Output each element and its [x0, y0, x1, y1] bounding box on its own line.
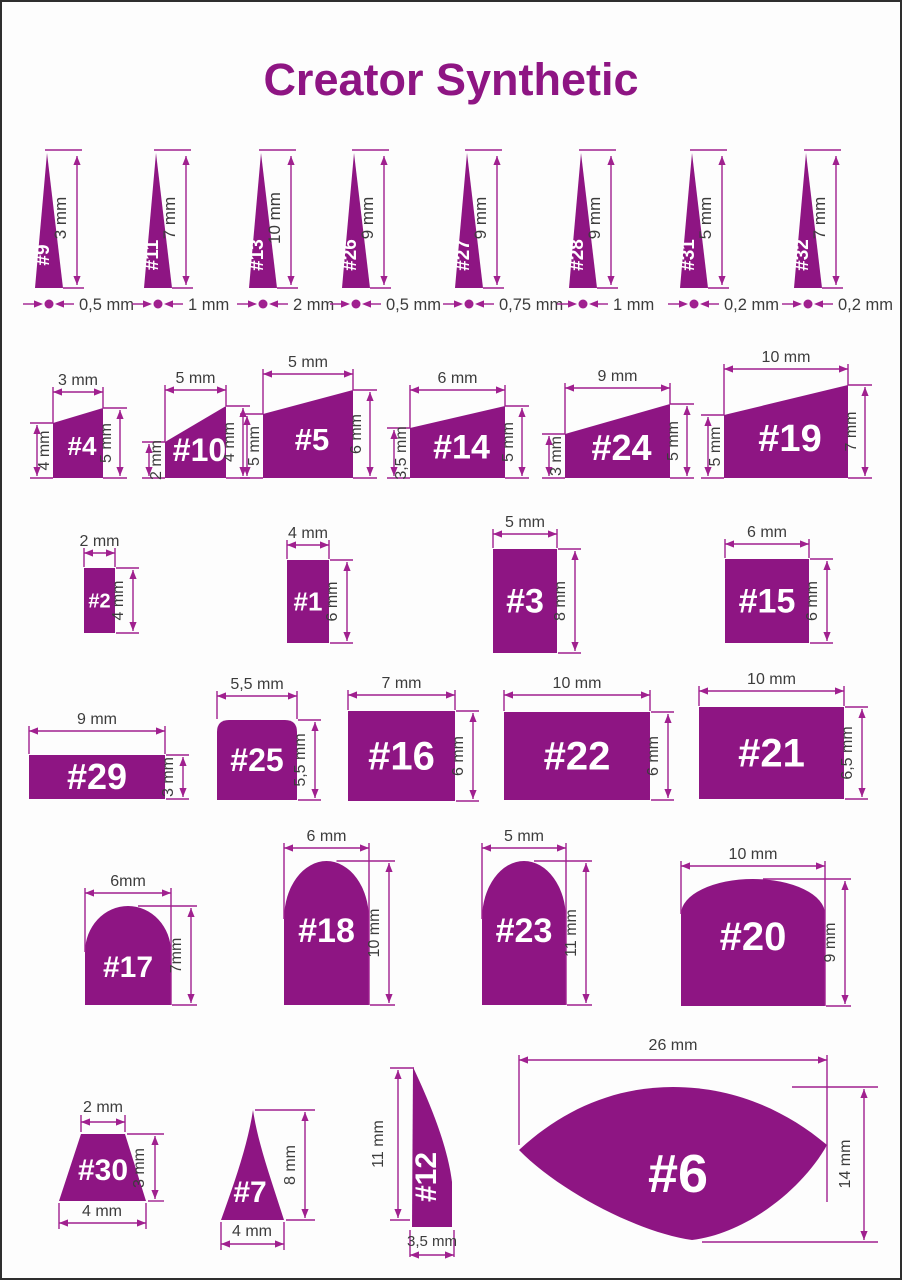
arrowhead-icon [568, 300, 577, 307]
brush-30-label: #30 [78, 1154, 128, 1187]
arrowhead-icon [664, 789, 671, 798]
brush-5-top-dim-label: 5 mm [288, 354, 328, 371]
arrowhead-icon [860, 1089, 867, 1098]
brush-16-group: 7 mm6 mm#16 [348, 675, 479, 801]
arrowhead-icon [394, 1209, 401, 1218]
brush-21-top-dim-label: 10 mm [747, 671, 796, 688]
brush-27-height-dim-label: 9 mm [471, 197, 490, 240]
brush-21-right-dim-label: 6,5 mm [839, 726, 856, 779]
brush-17-label: #17 [103, 951, 153, 984]
arrowhead-icon [182, 156, 189, 165]
arrowhead-icon [518, 408, 525, 417]
arrowhead-icon [348, 691, 357, 698]
arrowhead-icon [59, 1219, 68, 1226]
brush-7-label: #7 [233, 1176, 266, 1209]
arrowhead-icon [410, 1251, 419, 1258]
brush-25-right-dim-label: 5,5 mm [292, 733, 309, 786]
brush-17-group: 6mm7mm#17 [85, 873, 197, 1005]
arrowhead-icon [362, 300, 371, 307]
arrowhead-icon [85, 889, 94, 896]
brush-18-top-dim-label: 6 mm [307, 828, 347, 845]
width-dot-icon [579, 300, 588, 309]
arrowhead-icon [861, 387, 868, 396]
brush-16-label: #16 [368, 735, 435, 779]
brush-23-group: 5 mm11 mm#23 [482, 828, 592, 1005]
arrowhead-icon [571, 551, 578, 560]
brush-19-group: 10 mm5 mm7 mm#19 [701, 349, 872, 478]
arrowhead-icon [55, 300, 64, 307]
arrowhead-icon [589, 300, 598, 307]
brush-25-label: #25 [230, 742, 283, 778]
brush-20-top-dim-label: 10 mm [729, 846, 778, 863]
brush-11-width-dim-label: 1 mm [188, 296, 229, 314]
brush-3-top-dim-label: 5 mm [505, 514, 545, 531]
arrowhead-icon [366, 392, 373, 401]
arrowhead-icon [151, 1190, 158, 1199]
brush-12-group: 11 mm3,5 mm#12 [370, 1067, 457, 1259]
brush-20-label: #20 [720, 915, 787, 959]
brush-29-group: 9 mm3 mm#29 [29, 711, 189, 799]
arrowhead-icon [221, 1240, 230, 1247]
brush-5-group: 5 mm5 mm6 mm#5 [240, 354, 377, 478]
arrowhead-icon [385, 994, 392, 1003]
arrowhead-icon [29, 727, 38, 734]
brush-12-bottom-dim-label: 3,5 mm [407, 1233, 457, 1250]
brush-7-bottom-dim-label: 4 mm [232, 1223, 272, 1240]
brush-7-group: 8 mm4 mm#7 [221, 1110, 315, 1250]
arrowhead-icon [284, 844, 293, 851]
brush-5-left-dim-label: 5 mm [246, 426, 263, 466]
arrowhead-icon [94, 388, 103, 395]
arrowhead-icon [410, 386, 419, 393]
arrowhead-icon [832, 276, 839, 285]
brush-28-group: 9 mm#281 mm [557, 150, 654, 314]
brush-31-group: 5 mm#310,2 mm [668, 150, 779, 314]
brush-15-group: 6 mm6 mm#15 [725, 524, 833, 643]
brush-15-right-dim-label: 6 mm [804, 581, 821, 621]
arrowhead-icon [165, 386, 174, 393]
brush-28-label: #28 [567, 239, 588, 271]
arrowhead-icon [839, 365, 848, 372]
arrowhead-icon [841, 995, 848, 1004]
arrowhead-icon [287, 276, 294, 285]
brush-22-right-dim-label: 6 mm [645, 736, 662, 776]
brush-31-label: #31 [678, 239, 699, 271]
brush-27-label: #27 [453, 239, 474, 271]
brush-32-group: 7 mm#320,2 mm [782, 150, 893, 314]
arrowhead-icon [301, 1112, 308, 1121]
brush-23-top-dim-label: 5 mm [504, 828, 544, 845]
brush-6-group: 26 mm14 mm#6 [519, 1037, 878, 1242]
brush-2-label: #2 [88, 590, 110, 612]
arrowhead-icon [823, 632, 830, 641]
brush-17-top-dim-label: 6mm [110, 873, 146, 890]
brush-10-left-dim-label: 2 mm [148, 440, 165, 480]
arrowhead-icon [301, 1209, 308, 1218]
brush-19-left-dim-label: 5 mm [707, 427, 724, 467]
brush-19-right-dim-label: 7 mm [843, 412, 860, 452]
arrowhead-icon [116, 410, 123, 419]
arrowhead-icon [311, 722, 318, 731]
brush-9-height-dim-label: 3 mm [51, 197, 70, 240]
brush-22-group: 10 mm6 mm#22 [504, 675, 674, 800]
brush-24-group: 9 mm3 mm5 mm#24 [542, 368, 694, 478]
brush-21-label: #21 [738, 732, 805, 776]
arrowhead-icon [607, 276, 614, 285]
arrowhead-icon [800, 540, 809, 547]
arrowhead-icon [366, 467, 373, 476]
brush-2-top-dim-label: 2 mm [80, 533, 120, 550]
arrowhead-icon [469, 713, 476, 722]
arrowhead-icon [469, 790, 476, 799]
arrowhead-icon [548, 530, 557, 537]
brush-6-right-dim-label: 14 mm [837, 1140, 854, 1189]
brush-1-right-dim-label: 6 mm [324, 582, 341, 622]
brush-11-height-dim-label: 7 mm [160, 197, 179, 240]
arrowhead-icon [700, 300, 709, 307]
brush-28-width-dim-label: 1 mm [613, 296, 654, 314]
arrowhead-icon [164, 300, 173, 307]
brush-13-label: #13 [247, 239, 268, 271]
brush-4-group: 3 mm4 mm5 mm#4 [30, 372, 127, 478]
brush-3-group: 5 mm8 mm#3 [493, 514, 581, 653]
arrowhead-icon [243, 416, 250, 425]
brush-14-group: 6 mm3,5 mm5 mm#14 [387, 370, 529, 480]
arrowhead-icon [187, 908, 194, 917]
brush-4-left-dim-label: 4 mm [36, 431, 53, 471]
arrowhead-icon [34, 300, 43, 307]
arrowhead-icon [129, 622, 136, 631]
arrowhead-icon [73, 156, 80, 165]
brush-7-right-dim-label: 8 mm [282, 1145, 299, 1185]
brush-26-height-dim-label: 9 mm [358, 197, 377, 240]
brush-31-height-dim-label: 5 mm [696, 197, 715, 240]
arrowhead-icon [275, 1240, 284, 1247]
brush-18-group: 6 mm10 mm#18 [284, 828, 395, 1005]
arrowhead-icon [53, 388, 62, 395]
arrowhead-icon [814, 300, 823, 307]
arrowhead-icon [454, 300, 463, 307]
brush-20-right-dim-label: 9 mm [822, 923, 839, 963]
brush-23-right-dim-label: 11 mm [563, 909, 580, 957]
brush-30-bottom-dim-label: 4 mm [82, 1203, 122, 1220]
brush-24-right-dim-label: 5 mm [665, 421, 682, 461]
arrowhead-icon [679, 300, 688, 307]
arrowhead-icon [385, 863, 392, 872]
brush-12-label: #12 [410, 1152, 443, 1202]
brush-14-top-dim-label: 6 mm [438, 370, 478, 387]
arrowhead-icon [832, 156, 839, 165]
brush-29-top-dim-label: 9 mm [77, 711, 117, 728]
arrowhead-icon [343, 632, 350, 641]
arrowhead-icon [661, 384, 670, 391]
arrowhead-icon [116, 1118, 125, 1125]
brush-29-right-dim-label: 3 mm [160, 757, 177, 797]
brush-30-group: 2 mm3 mm4 mm#30 [59, 1099, 164, 1229]
arrowhead-icon [360, 844, 369, 851]
brush-13-width-dim-label: 2 mm [293, 296, 334, 314]
arrowhead-icon [835, 687, 844, 694]
arrowhead-icon [557, 844, 566, 851]
arrowhead-icon [681, 862, 690, 869]
brush-10-group: 5 mm2 mm4 mm#10 [142, 370, 250, 480]
brush-27-width-dim-label: 0,75 mm [499, 296, 563, 314]
brush-4-top-dim-label: 3 mm [58, 372, 98, 389]
brush-16-top-dim-label: 7 mm [382, 675, 422, 692]
arrowhead-icon [683, 406, 690, 415]
arrowhead-icon [482, 844, 491, 851]
brush-18-right-dim-label: 10 mm [366, 909, 383, 958]
brush-27-group: 9 mm#270,75 mm [443, 150, 563, 314]
arrowhead-icon [718, 156, 725, 165]
brush-10-label: #10 [173, 432, 226, 468]
brush-11-label: #11 [142, 239, 163, 270]
arrowhead-icon [182, 276, 189, 285]
arrowhead-icon [217, 386, 226, 393]
arrowhead-icon [858, 788, 865, 797]
arrowhead-icon [664, 714, 671, 723]
brush-24-left-dim-label: 3 mm [548, 436, 565, 476]
brush-size-diagram: 3 mm#90,5 mm7 mm#111 mm10 mm#132 mm9 mm#… [2, 2, 902, 1280]
arrowhead-icon [571, 642, 578, 651]
brush-12-left-dim-label: 11 mm [370, 1120, 387, 1168]
brush-4-right-dim-label: 5 mm [98, 423, 115, 463]
arrowhead-icon [73, 276, 80, 285]
brush-25-top-dim-label: 5,5 mm [230, 676, 283, 693]
arrowhead-icon [582, 863, 589, 872]
arrowhead-icon [823, 561, 830, 570]
brush-size-chart-page: Creator Synthetic 3 mm#90,5 mm7 mm#111 m… [0, 0, 902, 1280]
brush-18-label: #18 [298, 912, 355, 950]
brush-20-group: 10 mm9 mm#20 [681, 846, 851, 1006]
arrowhead-icon [343, 562, 350, 571]
arrowhead-icon [116, 467, 123, 476]
arrowhead-icon [81, 1118, 90, 1125]
brush-1-top-dim-label: 4 mm [288, 525, 328, 542]
arrowhead-icon [725, 540, 734, 547]
brush-5-label: #5 [295, 422, 329, 457]
brush-14-label: #14 [433, 428, 490, 466]
brush-9-group: 3 mm#90,5 mm [23, 150, 134, 314]
arrowhead-icon [683, 467, 690, 476]
arrowhead-icon [496, 386, 505, 393]
brush-14-left-dim-label: 3,5 mm [393, 426, 410, 479]
arrowhead-icon [641, 691, 650, 698]
arrowhead-icon [493, 530, 502, 537]
arrowhead-icon [493, 156, 500, 165]
brush-4-label: #4 [68, 431, 97, 461]
width-dot-icon [352, 300, 361, 309]
brush-22-label: #22 [544, 735, 611, 779]
width-dot-icon [45, 300, 54, 309]
arrowhead-icon [106, 549, 115, 556]
arrowhead-icon [287, 541, 296, 548]
brush-9-width-dim-label: 0,5 mm [79, 296, 134, 314]
brush-32-label: #32 [792, 239, 813, 271]
width-dot-icon [690, 300, 699, 309]
arrowhead-icon [565, 384, 574, 391]
arrowhead-icon [248, 300, 257, 307]
arrowhead-icon [287, 156, 294, 165]
arrowhead-icon [137, 1219, 146, 1226]
arrowhead-icon [841, 881, 848, 890]
brush-15-top-dim-label: 6 mm [747, 524, 787, 541]
brush-23-label: #23 [496, 912, 553, 950]
brush-2-right-dim-label: 4 mm [110, 581, 127, 621]
arrowhead-icon [311, 789, 318, 798]
brush-21-group: 10 mm6,5 mm#21 [699, 671, 868, 799]
arrowhead-icon [446, 691, 455, 698]
brush-22-top-dim-label: 10 mm [553, 675, 602, 692]
arrowhead-icon [320, 541, 329, 548]
arrowhead-icon [704, 417, 711, 426]
arrowhead-icon [344, 370, 353, 377]
arrowhead-icon [217, 692, 226, 699]
arrowhead-icon [860, 1231, 867, 1240]
brush-1-group: 4 mm6 mm#1 [287, 525, 353, 643]
arrowhead-icon [718, 276, 725, 285]
arrowhead-icon [518, 467, 525, 476]
arrowhead-icon [179, 788, 186, 797]
brush-5-right-dim-label: 6 mm [348, 414, 365, 454]
arrowhead-icon [129, 570, 136, 579]
arrowhead-icon [699, 687, 708, 694]
brush-28-height-dim-label: 9 mm [585, 197, 604, 240]
arrowhead-icon [143, 300, 152, 307]
brush-24-label: #24 [591, 427, 651, 468]
arrowhead-icon [607, 156, 614, 165]
arrowhead-icon [84, 549, 93, 556]
brush-6-top-dim-label: 26 mm [649, 1037, 698, 1054]
arrowhead-icon [156, 727, 165, 734]
brush-3-label: #3 [506, 583, 544, 621]
arrowhead-icon [475, 300, 484, 307]
arrowhead-icon [724, 365, 733, 372]
arrowhead-icon [239, 408, 246, 417]
brush-26-label: #26 [340, 239, 361, 271]
brush-14-right-dim-label: 5 mm [500, 422, 517, 462]
arrowhead-icon [288, 692, 297, 699]
arrowhead-icon [818, 1056, 827, 1063]
arrowhead-icon [380, 276, 387, 285]
arrowhead-icon [179, 757, 186, 766]
arrowhead-icon [445, 1251, 454, 1258]
brush-11-group: 7 mm#111 mm [132, 150, 229, 314]
brush-31-width-dim-label: 0,2 mm [724, 296, 779, 314]
arrowhead-icon [380, 156, 387, 165]
arrowhead-icon [582, 994, 589, 1003]
arrowhead-icon [816, 862, 825, 869]
arrowhead-icon [793, 300, 802, 307]
brush-9-label: #9 [33, 244, 54, 265]
brush-10-top-dim-label: 5 mm [176, 370, 216, 387]
brush-19-top-dim-label: 10 mm [762, 349, 811, 366]
brush-13-height-dim-label: 10 mm [265, 192, 284, 244]
brush-26-width-dim-label: 0,5 mm [386, 296, 441, 314]
arrowhead-icon [394, 1070, 401, 1079]
brush-30-top-dim-label: 2 mm [83, 1099, 123, 1116]
brush-25-group: 5,5 mm5,5 mm#25 [217, 676, 321, 800]
width-dot-icon [259, 300, 268, 309]
brush-2-group: 2 mm4 mm#2 [80, 533, 140, 633]
brush-26-group: 9 mm#260,5 mm [330, 150, 441, 314]
brush-32-width-dim-label: 0,2 mm [838, 296, 893, 314]
arrowhead-icon [504, 691, 513, 698]
brush-15-label: #15 [739, 583, 796, 621]
width-dot-icon [465, 300, 474, 309]
brush-3-right-dim-label: 8 mm [552, 581, 569, 621]
arrowhead-icon [858, 709, 865, 718]
arrowhead-icon [269, 300, 278, 307]
brush-16-right-dim-label: 6 mm [450, 736, 467, 776]
brush-13-group: 10 mm#132 mm [237, 150, 334, 314]
brush-30-right-dim-label: 3 mm [131, 1148, 148, 1188]
width-dot-icon [154, 300, 163, 309]
arrowhead-icon [263, 370, 272, 377]
arrowhead-icon [861, 467, 868, 476]
brush-24-top-dim-label: 9 mm [598, 368, 638, 385]
brush-29-label: #29 [67, 756, 127, 797]
arrowhead-icon [341, 300, 350, 307]
brush-1-label: #1 [294, 586, 323, 616]
brush-6-label: #6 [648, 1144, 708, 1204]
arrowhead-icon [151, 1136, 158, 1145]
brush-32-height-dim-label: 7 mm [810, 197, 829, 240]
brush-19-label: #19 [758, 418, 821, 460]
brush-17-right-dim-label: 7mm [168, 938, 185, 974]
width-dot-icon [804, 300, 813, 309]
arrowhead-icon [704, 467, 711, 476]
arrowhead-icon [187, 994, 194, 1003]
arrowhead-icon [519, 1056, 528, 1063]
arrowhead-icon [493, 276, 500, 285]
arrowhead-icon [162, 889, 171, 896]
